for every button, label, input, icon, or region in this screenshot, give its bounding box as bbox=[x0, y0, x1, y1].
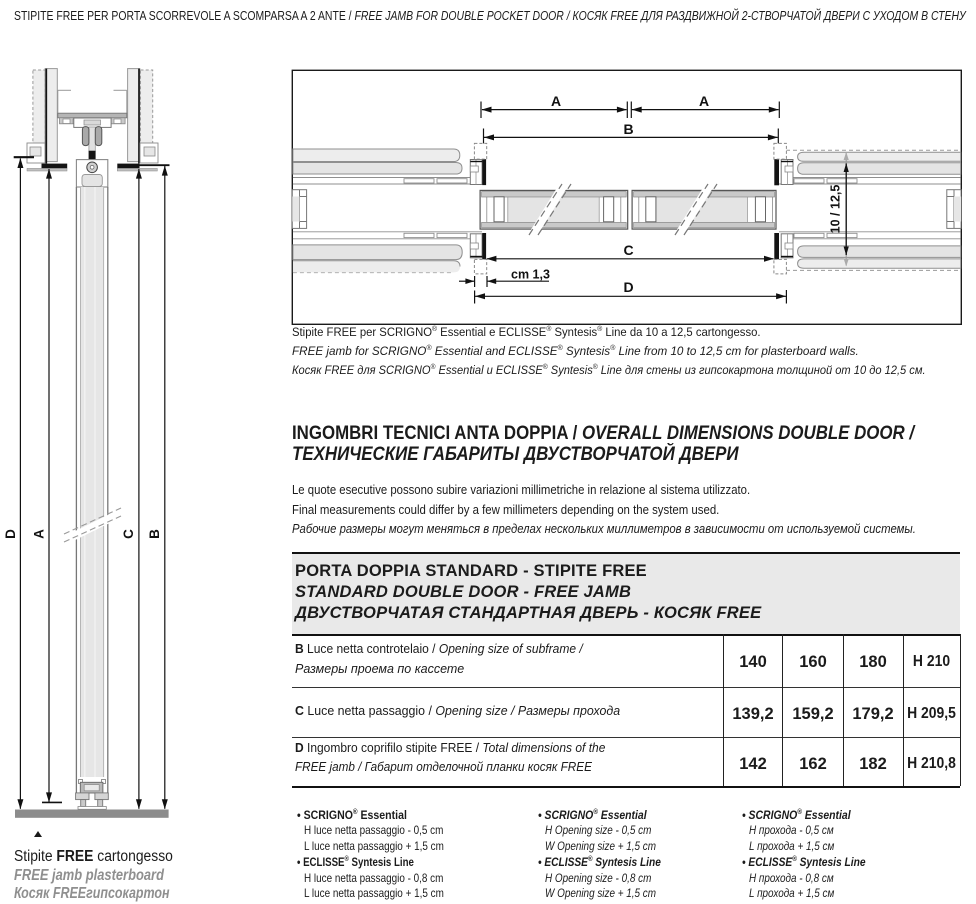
svg-text:B: B bbox=[624, 121, 634, 137]
svg-text:A: A bbox=[551, 93, 561, 109]
svg-text:B: B bbox=[147, 529, 162, 539]
svg-text:D: D bbox=[624, 279, 634, 295]
svg-text:10 / 12,5: 10 / 12,5 bbox=[829, 185, 843, 234]
svg-text:A: A bbox=[699, 93, 709, 109]
svg-text:cm 1,3: cm 1,3 bbox=[511, 268, 550, 282]
svg-text:C: C bbox=[121, 529, 136, 539]
svg-text:A: A bbox=[32, 529, 47, 539]
svg-text:D: D bbox=[3, 529, 18, 539]
svg-text:C: C bbox=[624, 242, 634, 258]
